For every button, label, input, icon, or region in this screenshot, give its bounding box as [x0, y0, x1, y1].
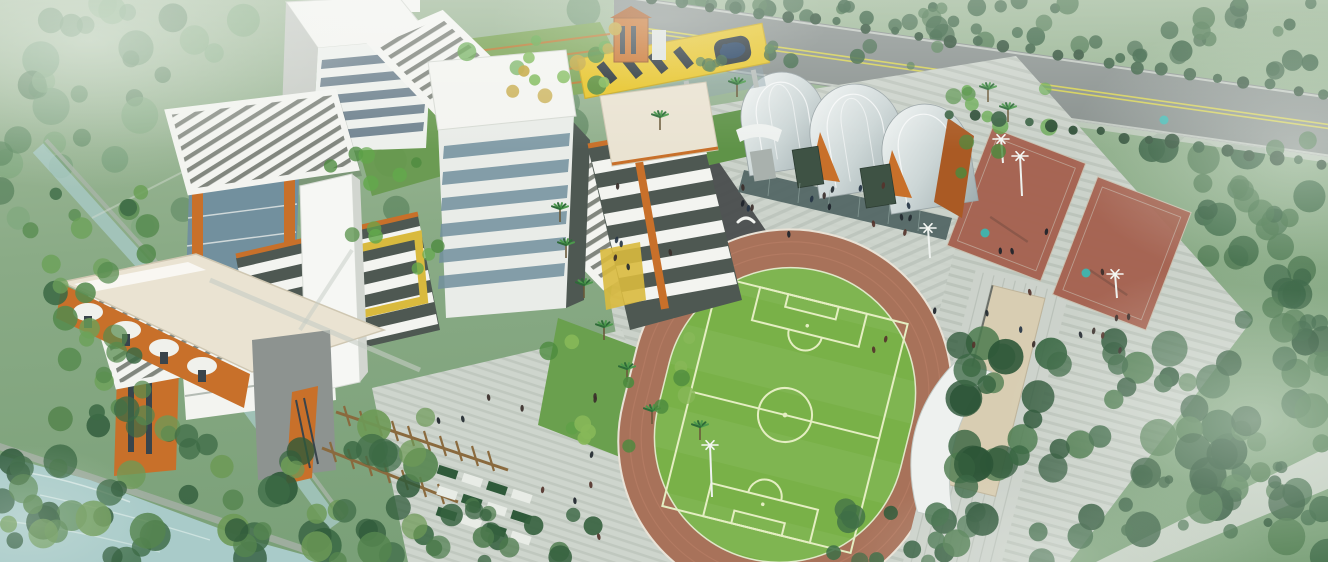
- tree: [673, 370, 690, 387]
- tree: [133, 381, 151, 399]
- tree: [42, 255, 61, 274]
- rendering-canvas: [0, 0, 1328, 562]
- tree: [955, 167, 966, 178]
- tree: [654, 399, 668, 413]
- gym-entry-box: [792, 146, 824, 188]
- tree: [53, 306, 78, 331]
- tree: [23, 222, 39, 238]
- tree: [53, 278, 69, 294]
- tree: [126, 347, 142, 363]
- tree: [473, 527, 494, 548]
- tree: [574, 415, 591, 432]
- tree: [324, 159, 337, 172]
- tree: [826, 545, 841, 560]
- tree: [333, 499, 357, 523]
- tree: [499, 538, 519, 558]
- tree: [622, 439, 635, 452]
- tree: [253, 522, 271, 540]
- tree: [120, 199, 137, 216]
- tree: [411, 157, 422, 168]
- tree: [50, 188, 62, 200]
- tree: [136, 214, 160, 238]
- tree: [426, 540, 442, 556]
- tree: [565, 335, 580, 350]
- tree: [399, 440, 426, 467]
- tree: [287, 437, 315, 465]
- tree: [179, 485, 199, 505]
- tree: [367, 221, 382, 236]
- tree: [841, 504, 865, 528]
- gym-entry-box: [750, 148, 776, 181]
- tree: [103, 325, 128, 350]
- tree: [223, 490, 244, 511]
- tree: [480, 509, 492, 521]
- tree: [386, 495, 411, 520]
- yellow-accent-wall: [600, 242, 646, 310]
- tree: [363, 176, 378, 191]
- gym-entry-box: [860, 164, 896, 208]
- tree: [175, 424, 199, 448]
- tree: [524, 516, 543, 535]
- tree: [345, 227, 360, 242]
- tree: [539, 342, 558, 361]
- tree: [258, 475, 290, 507]
- teal-umbrella: [981, 229, 990, 238]
- tree: [97, 262, 119, 284]
- tree: [48, 406, 73, 431]
- tree: [393, 168, 407, 182]
- tree: [623, 377, 634, 388]
- tree: [412, 262, 424, 274]
- tree: [954, 354, 987, 387]
- person: [520, 405, 523, 412]
- tree: [431, 239, 445, 253]
- tree: [79, 318, 100, 339]
- tree: [137, 244, 156, 263]
- tree: [225, 518, 249, 542]
- campus-aerial-rendering: [0, 0, 1328, 562]
- tree: [307, 504, 327, 524]
- tree: [58, 348, 82, 372]
- tree: [89, 404, 105, 420]
- tree: [566, 508, 580, 522]
- tree: [440, 504, 463, 527]
- tree: [301, 531, 332, 562]
- tree: [71, 217, 93, 239]
- tree: [210, 455, 233, 478]
- teal-umbrella: [1082, 269, 1091, 278]
- tree: [578, 431, 591, 444]
- tree: [678, 386, 696, 404]
- tree: [287, 461, 305, 479]
- tree: [683, 332, 695, 344]
- tree: [114, 396, 140, 422]
- tree: [96, 367, 112, 383]
- tree: [584, 516, 603, 535]
- tree: [416, 408, 435, 427]
- tree: [369, 439, 398, 468]
- tree: [75, 282, 96, 303]
